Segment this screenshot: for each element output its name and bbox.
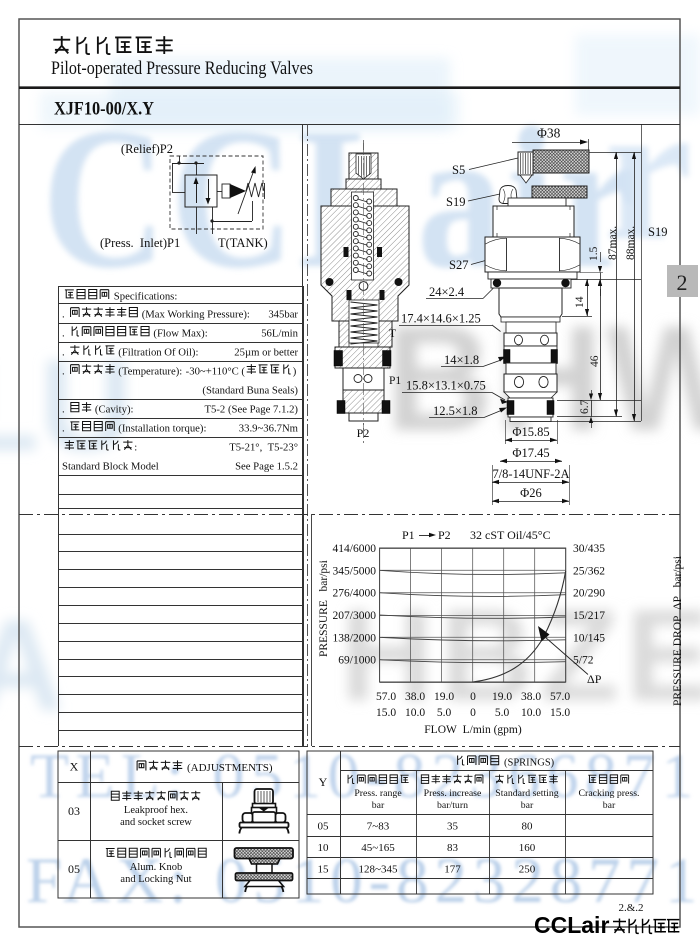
svg-text:bar/turn: bar/turn (437, 800, 468, 811)
svg-text:Press. increase: Press. increase (424, 788, 482, 799)
svg-text:FLOW L/min (gpm): FLOW L/min (gpm) (424, 724, 522, 736)
svg-text:bar: bar (372, 800, 385, 811)
svg-text:See Page 1.5.2: See Page 1.5.2 (235, 461, 298, 473)
svg-text:15: 15 (318, 864, 330, 876)
svg-text:19.0: 19.0 (434, 691, 454, 703)
svg-text:T5-21°, T5-23°: T5-21°, T5-23° (229, 442, 298, 454)
svg-text:Φ38: Φ38 (537, 126, 561, 141)
svg-text:03: 03 (68, 804, 80, 818)
svg-text:250: 250 (519, 864, 536, 876)
svg-text:25µm or better: 25µm or better (234, 347, 298, 359)
svg-text:15.8×13.1×0.75: 15.8×13.1×0.75 (406, 379, 486, 393)
svg-text:Specifications:: Specifications: (114, 291, 178, 303)
svg-text:PRESSURE DROP ΔP bar/psi: PRESSURE DROP ΔP bar/psi (672, 556, 684, 706)
svg-text:05: 05 (68, 862, 80, 876)
svg-text:56L/min: 56L/min (261, 328, 298, 340)
svg-text:P1: P1 (389, 375, 401, 387)
svg-text:Pilot-operated Pressure Reduci: Pilot-operated Pressure Reducing Valves (51, 58, 313, 79)
svg-text:83: 83 (447, 842, 459, 854)
svg-text:276/4000: 276/4000 (333, 588, 377, 600)
svg-text:(Filtration Of Oil):: (Filtration Of Oil): (118, 347, 198, 359)
svg-text:Leakproof hex.: Leakproof hex. (124, 805, 188, 816)
svg-text:30/435: 30/435 (573, 543, 605, 555)
svg-text:5.0: 5.0 (495, 707, 510, 719)
svg-text:PRESSURE bar/psi: PRESSURE bar/psi (318, 560, 330, 657)
svg-text:and Locking Nut: and Locking Nut (120, 874, 191, 885)
svg-text:T: T (389, 328, 396, 340)
svg-text:T5-2 (See Page 7.1.2): T5-2 (See Page 7.1.2) (205, 404, 299, 416)
svg-text:ΔP: ΔP (587, 672, 602, 686)
svg-text:14×1.8: 14×1.8 (444, 353, 479, 367)
svg-text:25/362: 25/362 (573, 565, 605, 577)
svg-text:15/217: 15/217 (573, 610, 605, 622)
svg-text:2: 2 (677, 270, 688, 295)
svg-text:345bar: 345bar (268, 309, 298, 321)
svg-text:12.5×1.8: 12.5×1.8 (433, 404, 478, 418)
svg-text:): ) (293, 366, 297, 378)
svg-text:(SPRINGS): (SPRINGS) (504, 758, 555, 769)
svg-text:128~345: 128~345 (359, 864, 398, 876)
svg-text:(Relief)P2: (Relief)P2 (121, 142, 173, 156)
svg-text:bar: bar (603, 800, 616, 811)
svg-text:15.0: 15.0 (550, 707, 570, 719)
svg-text:160: 160 (519, 842, 536, 854)
svg-text:Standard Block Model: Standard Block Model (62, 461, 159, 473)
svg-text:10/145: 10/145 (573, 632, 605, 644)
svg-text:.: . (62, 309, 67, 321)
svg-text:414/6000: 414/6000 (333, 543, 377, 555)
svg-text:A: A (0, 592, 64, 738)
svg-text:5/72: 5/72 (573, 655, 594, 667)
svg-text:38.0: 38.0 (521, 691, 541, 703)
svg-text:XJF10-00/X.Y: XJF10-00/X.Y (54, 100, 155, 120)
svg-text:Standard setting: Standard setting (495, 788, 558, 799)
svg-text:69/1000: 69/1000 (338, 655, 376, 667)
svg-text:Y: Y (319, 775, 328, 789)
svg-text:(Press. Inlet)P1: (Press. Inlet)P1 (100, 236, 180, 250)
svg-text:177: 177 (444, 864, 461, 876)
svg-text:S19: S19 (648, 225, 667, 239)
svg-text:.: . (62, 366, 67, 378)
svg-text:and socket screw: and socket screw (120, 817, 192, 828)
svg-text:P1: P1 (402, 528, 415, 542)
svg-text:(Installation torque):: (Installation torque): (118, 423, 206, 435)
svg-text:7/8-14UNF-2A: 7/8-14UNF-2A (492, 467, 569, 481)
svg-text:0: 0 (470, 707, 476, 719)
svg-text:Alum. Knob: Alum. Knob (130, 862, 183, 873)
svg-text::: : (134, 442, 137, 454)
svg-text:5.0: 5.0 (437, 707, 452, 719)
svg-text:32 cST Oil/45°C: 32 cST Oil/45°C (470, 528, 551, 542)
svg-text:10: 10 (318, 842, 330, 854)
svg-text:Press. range: Press. range (354, 788, 402, 799)
svg-text:2.&.2: 2.&.2 (618, 902, 643, 914)
svg-text:14: 14 (574, 296, 586, 308)
svg-text:20/290: 20/290 (573, 588, 605, 600)
svg-text:24×2.4: 24×2.4 (429, 285, 465, 299)
svg-text:bar: bar (521, 800, 534, 811)
svg-text:345/5000: 345/5000 (333, 565, 377, 577)
svg-text:S5: S5 (452, 163, 465, 177)
svg-text:CCLair: CCLair (534, 912, 609, 938)
svg-text:1.5: 1.5 (588, 246, 600, 261)
svg-text:(Standard Buna Seals): (Standard Buna Seals) (202, 385, 298, 397)
svg-text:0: 0 (470, 691, 476, 703)
svg-text:.: . (62, 404, 67, 416)
svg-text:Φ17.45: Φ17.45 (512, 446, 549, 460)
svg-text:17.4×14.6×1.25: 17.4×14.6×1.25 (401, 312, 481, 326)
svg-text:80: 80 (522, 821, 534, 833)
svg-text:10.0: 10.0 (521, 707, 541, 719)
svg-text:P2: P2 (357, 426, 370, 440)
svg-text:88max.: 88max. (625, 226, 637, 260)
svg-text:T(TANK): T(TANK) (218, 236, 268, 250)
svg-text:X: X (70, 760, 79, 774)
svg-text:-30~+110°C (: -30~+110°C ( (186, 366, 246, 378)
svg-text:19.0: 19.0 (492, 691, 512, 703)
svg-text:.: . (62, 347, 67, 359)
svg-text:207/3000: 207/3000 (333, 610, 377, 622)
svg-text:45~165: 45~165 (361, 842, 395, 854)
svg-text:7~83: 7~83 (367, 821, 390, 833)
svg-text:(Temperature):: (Temperature): (118, 366, 182, 378)
svg-text:.: . (62, 328, 67, 340)
svg-text:46: 46 (589, 355, 601, 367)
svg-text:S27: S27 (449, 258, 468, 272)
svg-text:(Max Working Pressure):: (Max Working Pressure): (142, 309, 250, 321)
svg-text:(Flow Max):: (Flow Max): (153, 328, 207, 340)
svg-text:33.9~36.7Nm: 33.9~36.7Nm (239, 423, 299, 435)
svg-text:(Cavity):: (Cavity): (95, 404, 134, 416)
svg-text:(ADJUSTMENTS): (ADJUSTMENTS) (187, 762, 273, 774)
svg-text:S19: S19 (446, 195, 465, 209)
svg-text:15.0: 15.0 (376, 707, 396, 719)
svg-text:138/2000: 138/2000 (333, 632, 377, 644)
svg-text:6.7: 6.7 (579, 399, 591, 414)
svg-text:57.0: 57.0 (376, 691, 396, 703)
svg-text:10.0: 10.0 (405, 707, 425, 719)
svg-text:.: . (62, 423, 67, 435)
svg-text:05: 05 (318, 821, 330, 833)
svg-text:P2: P2 (438, 528, 451, 542)
svg-text:Φ26: Φ26 (520, 486, 542, 500)
svg-text:38.0: 38.0 (405, 691, 425, 703)
svg-text:87max.: 87max. (607, 226, 619, 260)
svg-text:57.0: 57.0 (550, 691, 570, 703)
svg-text:Φ15.85: Φ15.85 (512, 425, 549, 439)
svg-text:Cracking press.: Cracking press. (579, 788, 640, 799)
svg-text:35: 35 (447, 821, 459, 833)
